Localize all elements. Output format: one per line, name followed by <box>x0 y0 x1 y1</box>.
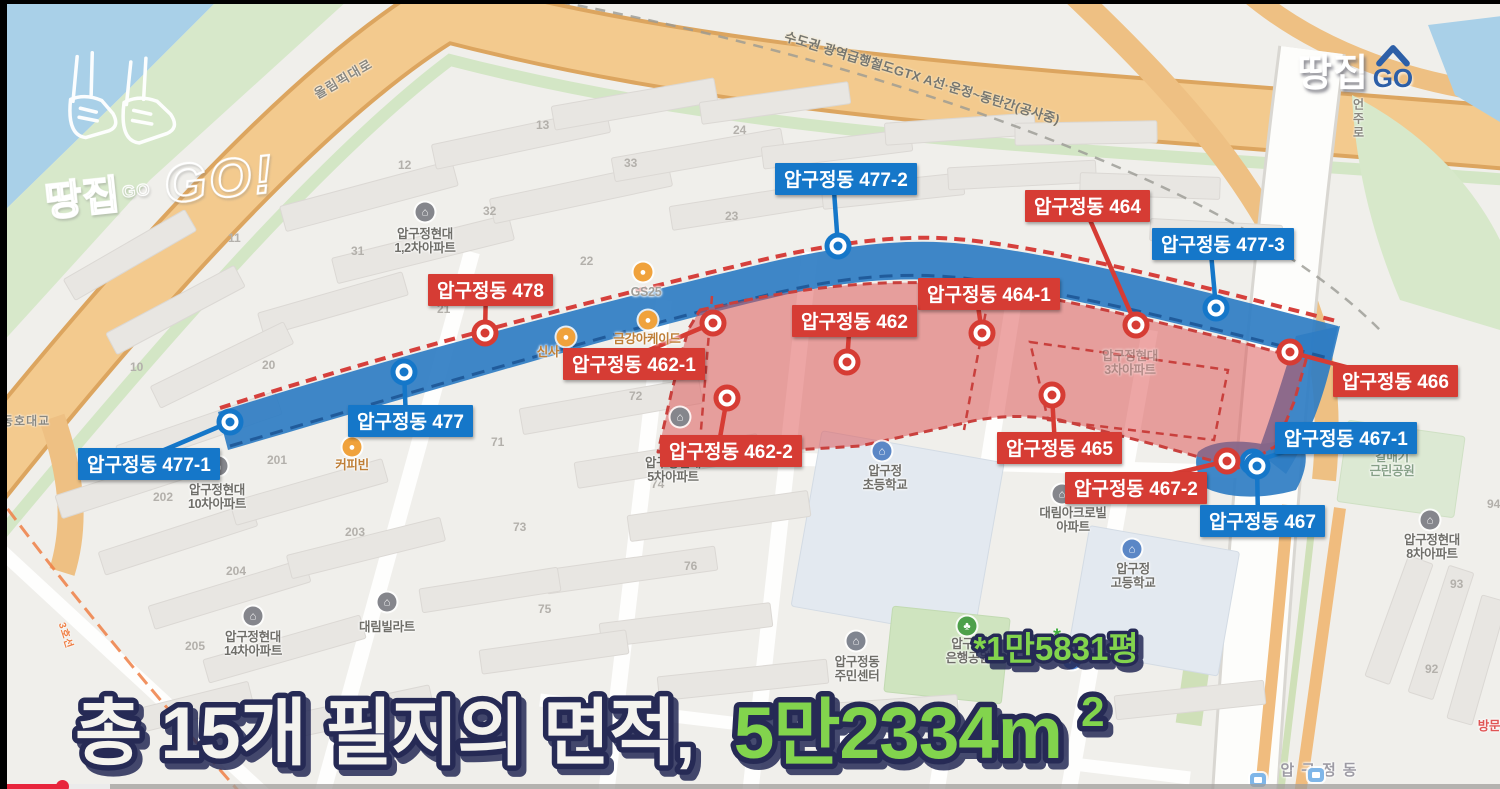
high-school-grounds <box>1068 526 1240 676</box>
parcel-marker-dot <box>978 329 987 338</box>
parcel-marker-dot <box>1212 304 1221 313</box>
block-number: 203 <box>345 525 365 539</box>
block-number: 205 <box>185 639 205 653</box>
block-number: 11 <box>228 231 241 245</box>
building <box>1080 173 1221 200</box>
galmaegi-park-area <box>1337 420 1465 518</box>
block-number: 94 <box>1487 497 1500 511</box>
block-number: 12 <box>398 158 412 172</box>
channel-logo: 땅집 GO <box>1297 42 1415 97</box>
parcel-marker-dot <box>481 329 490 338</box>
block-number: 73 <box>513 520 527 534</box>
video-played <box>0 784 63 789</box>
parcel-marker-dot <box>1132 321 1141 330</box>
parcel-marker-dot <box>226 418 235 427</box>
block-number: 202 <box>153 490 173 504</box>
block-number: 74 <box>651 477 665 491</box>
parcel-marker-dot <box>1286 348 1295 357</box>
letterbox-top <box>0 0 1500 4</box>
parcel-marker-dot <box>843 358 852 367</box>
sneakers-icon <box>29 34 200 160</box>
block-number: 23 <box>725 209 739 223</box>
letterbox-left <box>0 0 7 789</box>
block-number: 75 <box>538 602 552 616</box>
parcel-marker-dot <box>709 319 718 328</box>
block-number: 204 <box>226 564 246 578</box>
block-number: 32 <box>483 204 497 218</box>
eunhaeng-park-area <box>884 606 1010 704</box>
video-frame: 1011121320212223243132337172737475762012… <box>0 0 1500 789</box>
block-number: 31 <box>351 244 365 258</box>
block-number: 201 <box>267 453 287 467</box>
parcel-marker-dot <box>1253 462 1262 471</box>
parcel-marker-dot <box>834 242 843 251</box>
video-progress-bar[interactable] <box>0 784 1500 789</box>
video-scrubber[interactable] <box>56 780 69 789</box>
block-number: 71 <box>491 435 505 449</box>
block-number: 20 <box>262 358 276 372</box>
block-number: 24 <box>733 123 747 137</box>
channel-logo-text: 땅집 <box>1297 42 1369 97</box>
block-number: 76 <box>684 559 698 573</box>
block-number: 22 <box>580 254 594 268</box>
block-number: 13 <box>536 118 550 132</box>
block-number: 10 <box>130 360 144 374</box>
parcel-marker-dot <box>400 368 409 377</box>
block-number: 92 <box>1425 662 1439 676</box>
block-number: 72 <box>629 389 643 403</box>
block-number: 93 <box>1450 577 1464 591</box>
block-number: 21 <box>437 302 451 316</box>
parcel-marker-dot <box>723 394 732 403</box>
parcel-marker-dot <box>1048 391 1057 400</box>
show-stamp-logo: 땅집GO GO! <box>29 26 278 228</box>
channel-logo-go: GO <box>1373 68 1413 88</box>
parcel-marker-dot <box>1223 457 1232 466</box>
block-number: 33 <box>624 156 638 170</box>
